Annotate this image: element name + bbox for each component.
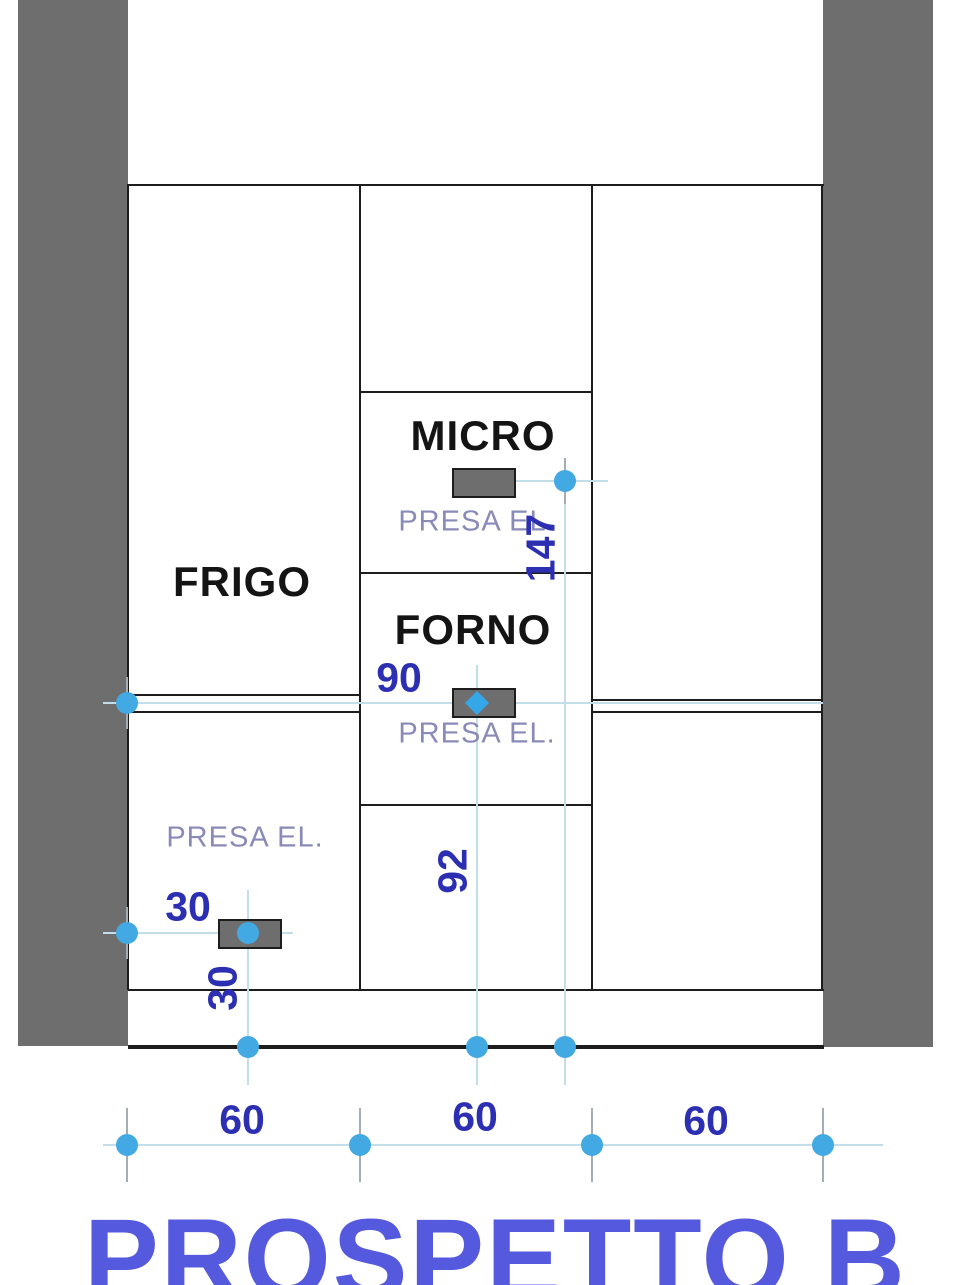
right-base-top-line <box>592 711 823 713</box>
dim-92: 92 <box>430 848 477 894</box>
marker-wall-90 <box>116 692 138 714</box>
dim-60-middle: 60 <box>452 1094 498 1141</box>
cabinet-top-line <box>128 184 824 186</box>
dim-30-height: 30 <box>200 965 247 1011</box>
micro-cabinet-top-line <box>360 391 593 393</box>
cabinet-right-edge <box>821 184 823 990</box>
divider-mid-right <box>591 184 593 990</box>
marker-chain-3 <box>581 1134 603 1156</box>
right-wall <box>823 0 933 1047</box>
marker-wall-30 <box>116 922 138 944</box>
fridge-label: FRIGO <box>173 558 311 606</box>
fridge-bottom-line <box>128 694 361 696</box>
marker-left-outlet <box>237 922 259 944</box>
right-tall-bottom-line <box>592 699 823 701</box>
elevation-drawing: FRIGO MICRO FORNO PRESA EL. PRESA EL. PR… <box>0 0 970 1285</box>
marker-floor-micro <box>554 1036 576 1058</box>
dim-60-right: 60 <box>683 1098 729 1145</box>
divider-left-mid <box>359 184 361 990</box>
drawing-title: PROSPETTO B <box>84 1203 907 1285</box>
marker-chain-4 <box>812 1134 834 1156</box>
marker-chain-1 <box>116 1134 138 1156</box>
oven-label: FORNO <box>395 606 552 654</box>
width-chain-line <box>103 1144 883 1146</box>
cabinet-left-edge <box>127 184 129 990</box>
marker-floor-left <box>237 1036 259 1058</box>
marker-micro-outlet <box>554 470 576 492</box>
dim-147: 147 <box>518 514 565 582</box>
marker-floor-oven <box>466 1036 488 1058</box>
microwave-label: MICRO <box>411 412 556 460</box>
marker-chain-2 <box>349 1134 371 1156</box>
left-outlet-label: PRESA EL. <box>166 822 323 855</box>
micro-outlet <box>452 468 516 498</box>
left-base-top-line <box>128 711 361 713</box>
dim-30-offset: 30 <box>165 884 211 931</box>
dim-60-left: 60 <box>219 1097 265 1144</box>
oven-outlet-label: PRESA EL. <box>398 718 555 751</box>
dim-90: 90 <box>376 655 422 702</box>
left-wall <box>18 0 128 1046</box>
